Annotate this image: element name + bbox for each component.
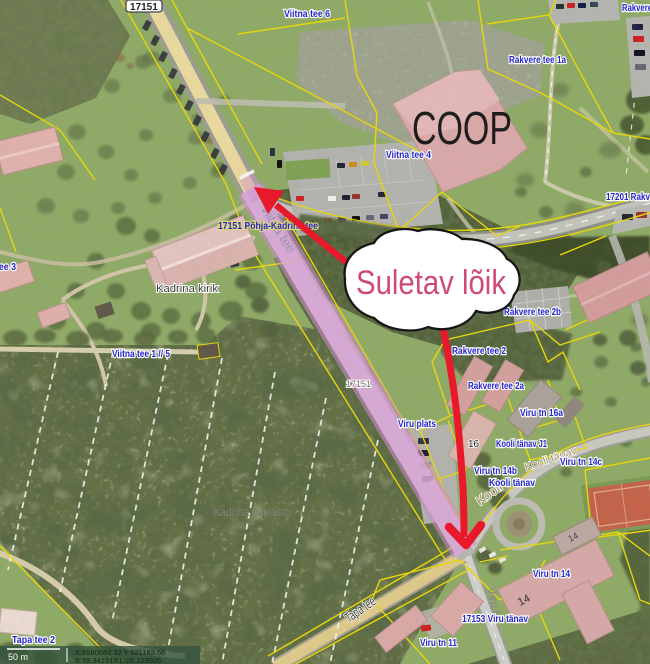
svg-text:B:59.341610 L:26.129926: B:59.341610 L:26.129926 xyxy=(75,656,161,664)
svg-text:50 m: 50 m xyxy=(8,652,28,662)
svg-text:Suletav lõik: Suletav lõik xyxy=(356,264,507,302)
